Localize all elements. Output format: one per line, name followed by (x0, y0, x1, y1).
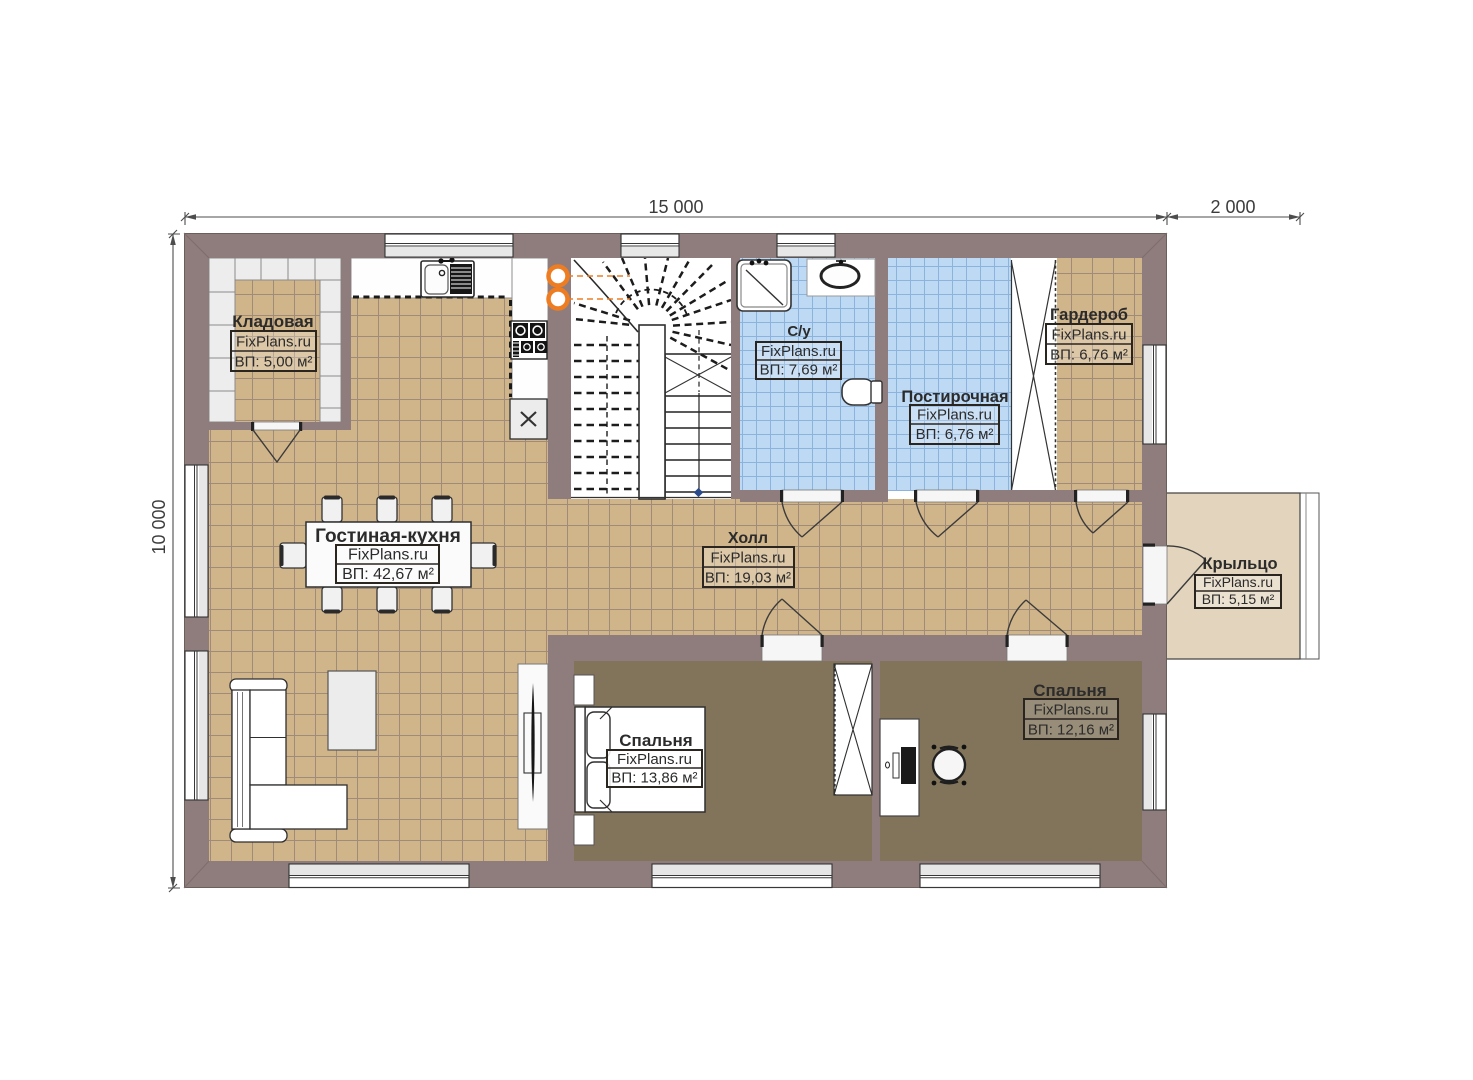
svg-text:15 000: 15 000 (648, 197, 703, 217)
svg-text:ВП: 6,76 м²: ВП: 6,76 м² (916, 426, 994, 443)
svg-text:FixPlans.ru: FixPlans.ru (348, 547, 428, 564)
svg-text:FixPlans.ru: FixPlans.ru (236, 334, 311, 351)
svg-text:ВП: 5,00 м²: ВП: 5,00 м² (235, 354, 313, 371)
svg-text:ВП: 6,76 м²: ВП: 6,76 м² (1050, 347, 1128, 364)
svg-text:FixPlans.ru: FixPlans.ru (1051, 327, 1126, 344)
svg-text:ВП: 5,15 м²: ВП: 5,15 м² (1202, 591, 1275, 607)
svg-text:FixPlans.ru: FixPlans.ru (917, 407, 992, 424)
svg-text:ВП: 13,86 м²: ВП: 13,86 м² (611, 770, 697, 787)
svg-text:2 000: 2 000 (1210, 197, 1255, 217)
svg-text:FixPlans.ru: FixPlans.ru (1033, 702, 1108, 719)
svg-text:Гостиная-кухня: Гостиная-кухня (315, 526, 461, 547)
svg-text:Гардероб: Гардероб (1050, 306, 1128, 324)
svg-text:FixPlans.ru: FixPlans.ru (761, 343, 836, 360)
svg-text:Холл: Холл (728, 530, 768, 547)
svg-text:Крыльцо: Крыльцо (1202, 555, 1277, 573)
svg-text:10 000: 10 000 (149, 499, 169, 554)
svg-text:ВП: 42,67 м²: ВП: 42,67 м² (342, 566, 435, 583)
svg-text:FixPlans.ru: FixPlans.ru (1203, 574, 1273, 590)
svg-text:ВП: 12,16 м²: ВП: 12,16 м² (1028, 722, 1114, 739)
svg-text:FixPlans.ru: FixPlans.ru (617, 751, 692, 768)
svg-text:Постирочная: Постирочная (901, 388, 1008, 406)
svg-text:Спальня: Спальня (619, 731, 692, 750)
svg-text:ВП: 7,69 м²: ВП: 7,69 м² (760, 362, 838, 379)
svg-text:Спальня: Спальня (1033, 681, 1106, 700)
svg-text:FixPlans.ru: FixPlans.ru (710, 550, 785, 567)
svg-text:С/у: С/у (787, 323, 811, 340)
svg-text:ВП: 19,03 м²: ВП: 19,03 м² (705, 570, 791, 587)
svg-text:Кладовая: Кладовая (232, 312, 313, 331)
